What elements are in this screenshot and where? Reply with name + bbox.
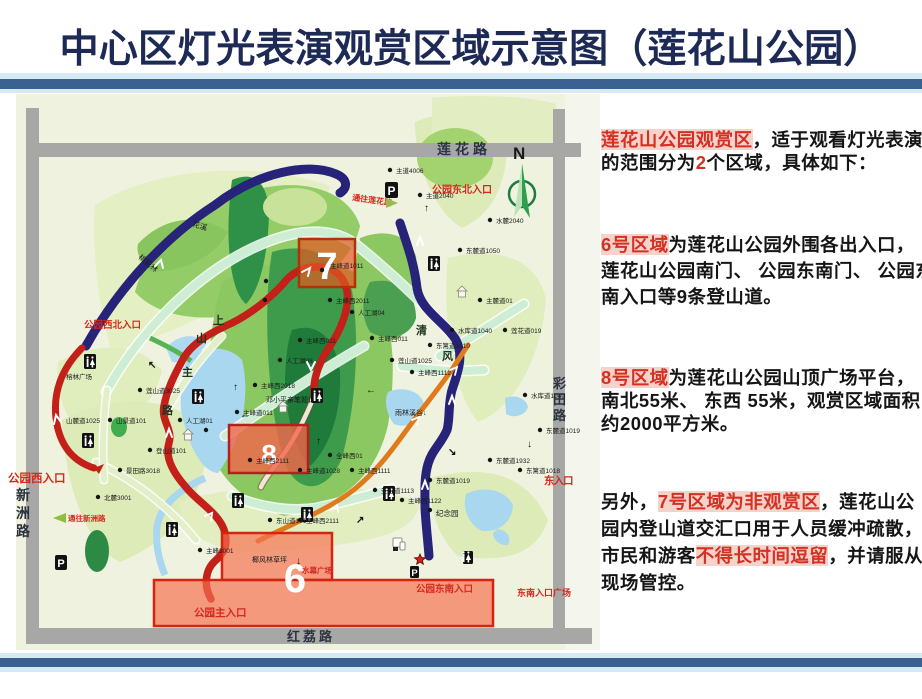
svg-text:主峰道1028: 主峰道1028	[306, 466, 340, 475]
svg-text:主峰西011: 主峰西011	[378, 334, 408, 343]
svg-text:8: 8	[261, 439, 277, 470]
svg-text:东入口: 东入口	[544, 474, 573, 487]
svg-text:水麓2040: 水麓2040	[496, 216, 524, 225]
svg-text:公园主入口: 公园主入口	[194, 606, 247, 619]
svg-text:↗: ↗	[356, 515, 364, 526]
svg-text:公园东南入口: 公园东南入口	[416, 583, 473, 595]
svg-text:←: ←	[240, 410, 250, 421]
svg-text:山麓道1025: 山麓道1025	[66, 416, 100, 425]
svg-text:人工湖08: 人工湖08	[286, 356, 313, 365]
svg-text:东篱道1010: 东篱道1010	[436, 341, 470, 350]
svg-text:东麓道1932: 东麓道1932	[496, 456, 530, 465]
svg-text:景田路3018: 景田路3018	[126, 466, 160, 475]
svg-text:主峰西2011: 主峰西2011	[336, 296, 370, 305]
svg-text:↑: ↑	[424, 203, 429, 214]
svg-text:纪念园: 纪念园	[436, 508, 459, 518]
svg-text:主峰西011: 主峰西011	[306, 336, 336, 345]
svg-text:风: 风	[442, 349, 453, 363]
svg-text:↘: ↘	[448, 447, 456, 458]
svg-text:全峰西01: 全峰西01	[336, 451, 363, 460]
svg-text:人工湖04: 人工湖04	[358, 308, 385, 317]
svg-text:椰风林草坪: 椰风林草坪	[252, 555, 287, 564]
svg-text:主峰西2111: 主峰西2111	[256, 456, 289, 465]
svg-text:清: 清	[416, 323, 427, 337]
svg-text:6: 6	[284, 557, 306, 601]
svg-text:主峰西1112: 主峰西1112	[418, 368, 451, 377]
svg-text:水库道1040: 水库道1040	[531, 391, 565, 400]
svg-text:公园西北入口: 公园西北入口	[84, 319, 141, 331]
svg-text:圣山道1113: 圣山道1113	[381, 486, 414, 495]
svg-text:山景道101: 山景道101	[116, 416, 147, 425]
svg-text:P: P	[57, 558, 64, 570]
svg-text:彩: 彩	[552, 376, 566, 391]
svg-text:路: 路	[162, 403, 174, 417]
svg-text:主峰3001: 主峰3001	[206, 546, 234, 555]
svg-text:↑: ↑	[316, 436, 321, 447]
svg-text:主峰西2111: 主峰西2111	[306, 516, 339, 525]
svg-text:洲: 洲	[16, 505, 30, 521]
svg-text:主峰西1111: 主峰西1111	[358, 466, 391, 475]
svg-text:路: 路	[16, 523, 31, 539]
svg-text:东篱道1018: 东篱道1018	[526, 466, 560, 475]
svg-text:榕林广场: 榕林广场	[66, 372, 93, 381]
svg-text:P: P	[387, 184, 395, 198]
svg-text:P: P	[411, 568, 418, 579]
svg-text:主: 主	[182, 365, 193, 379]
svg-text:主道4006: 主道4006	[396, 166, 424, 175]
svg-text:莲山道3025: 莲山道3025	[146, 386, 180, 395]
svg-text:雨林溪谷↓: 雨林溪谷↓	[395, 408, 427, 417]
svg-text:登山道101: 登山道101	[156, 446, 187, 455]
svg-text:水库道1040: 水库道1040	[458, 326, 492, 335]
svg-text:↑: ↑	[233, 382, 238, 393]
svg-text:莲花道019: 莲花道019	[511, 326, 542, 335]
svg-text:↓: ↓	[527, 439, 532, 450]
svg-text:东山道101: 东山道101	[276, 516, 307, 525]
svg-text:人工湖01: 人工湖01	[186, 416, 213, 425]
svg-text:↓: ↓	[296, 556, 301, 567]
svg-text:东麓道1050: 东麓道1050	[466, 246, 500, 255]
svg-text:通往新洲路: 通往新洲路	[68, 513, 106, 523]
svg-text:主麓道01: 主麓道01	[486, 296, 513, 305]
svg-text:东南入口广场: 东南入口广场	[517, 587, 571, 598]
svg-text:主峰西1122: 主峰西1122	[408, 496, 442, 505]
svg-text:←: ←	[366, 385, 376, 396]
svg-text:山: 山	[196, 331, 207, 345]
svg-text:主峰西2018: 主峰西2018	[261, 381, 295, 390]
svg-text:红荔路: 红荔路	[287, 629, 335, 644]
svg-text:东麓道1019: 东麓道1019	[436, 476, 470, 485]
svg-text:路: 路	[553, 408, 567, 423]
svg-text:N: N	[513, 144, 525, 163]
svg-text:上: 上	[213, 313, 224, 327]
svg-text:莲山道1025: 莲山道1025	[398, 356, 432, 365]
svg-text:↖: ↖	[148, 360, 156, 371]
svg-text:莲花路: 莲花路	[437, 141, 491, 157]
svg-text:水幕广场: 水幕广场	[302, 565, 332, 575]
svg-text:东麓道1019: 东麓道1019	[546, 426, 580, 435]
svg-text:主道2040: 主道2040	[426, 191, 454, 200]
svg-text:邓小平亲笔题词: 邓小平亲笔题词	[266, 395, 315, 404]
svg-text:新: 新	[16, 487, 30, 503]
svg-text:北麓3001: 北麓3001	[104, 493, 132, 502]
svg-text:公园西入口: 公园西入口	[8, 471, 66, 485]
svg-text:主峰道1011: 主峰道1011	[330, 261, 364, 270]
